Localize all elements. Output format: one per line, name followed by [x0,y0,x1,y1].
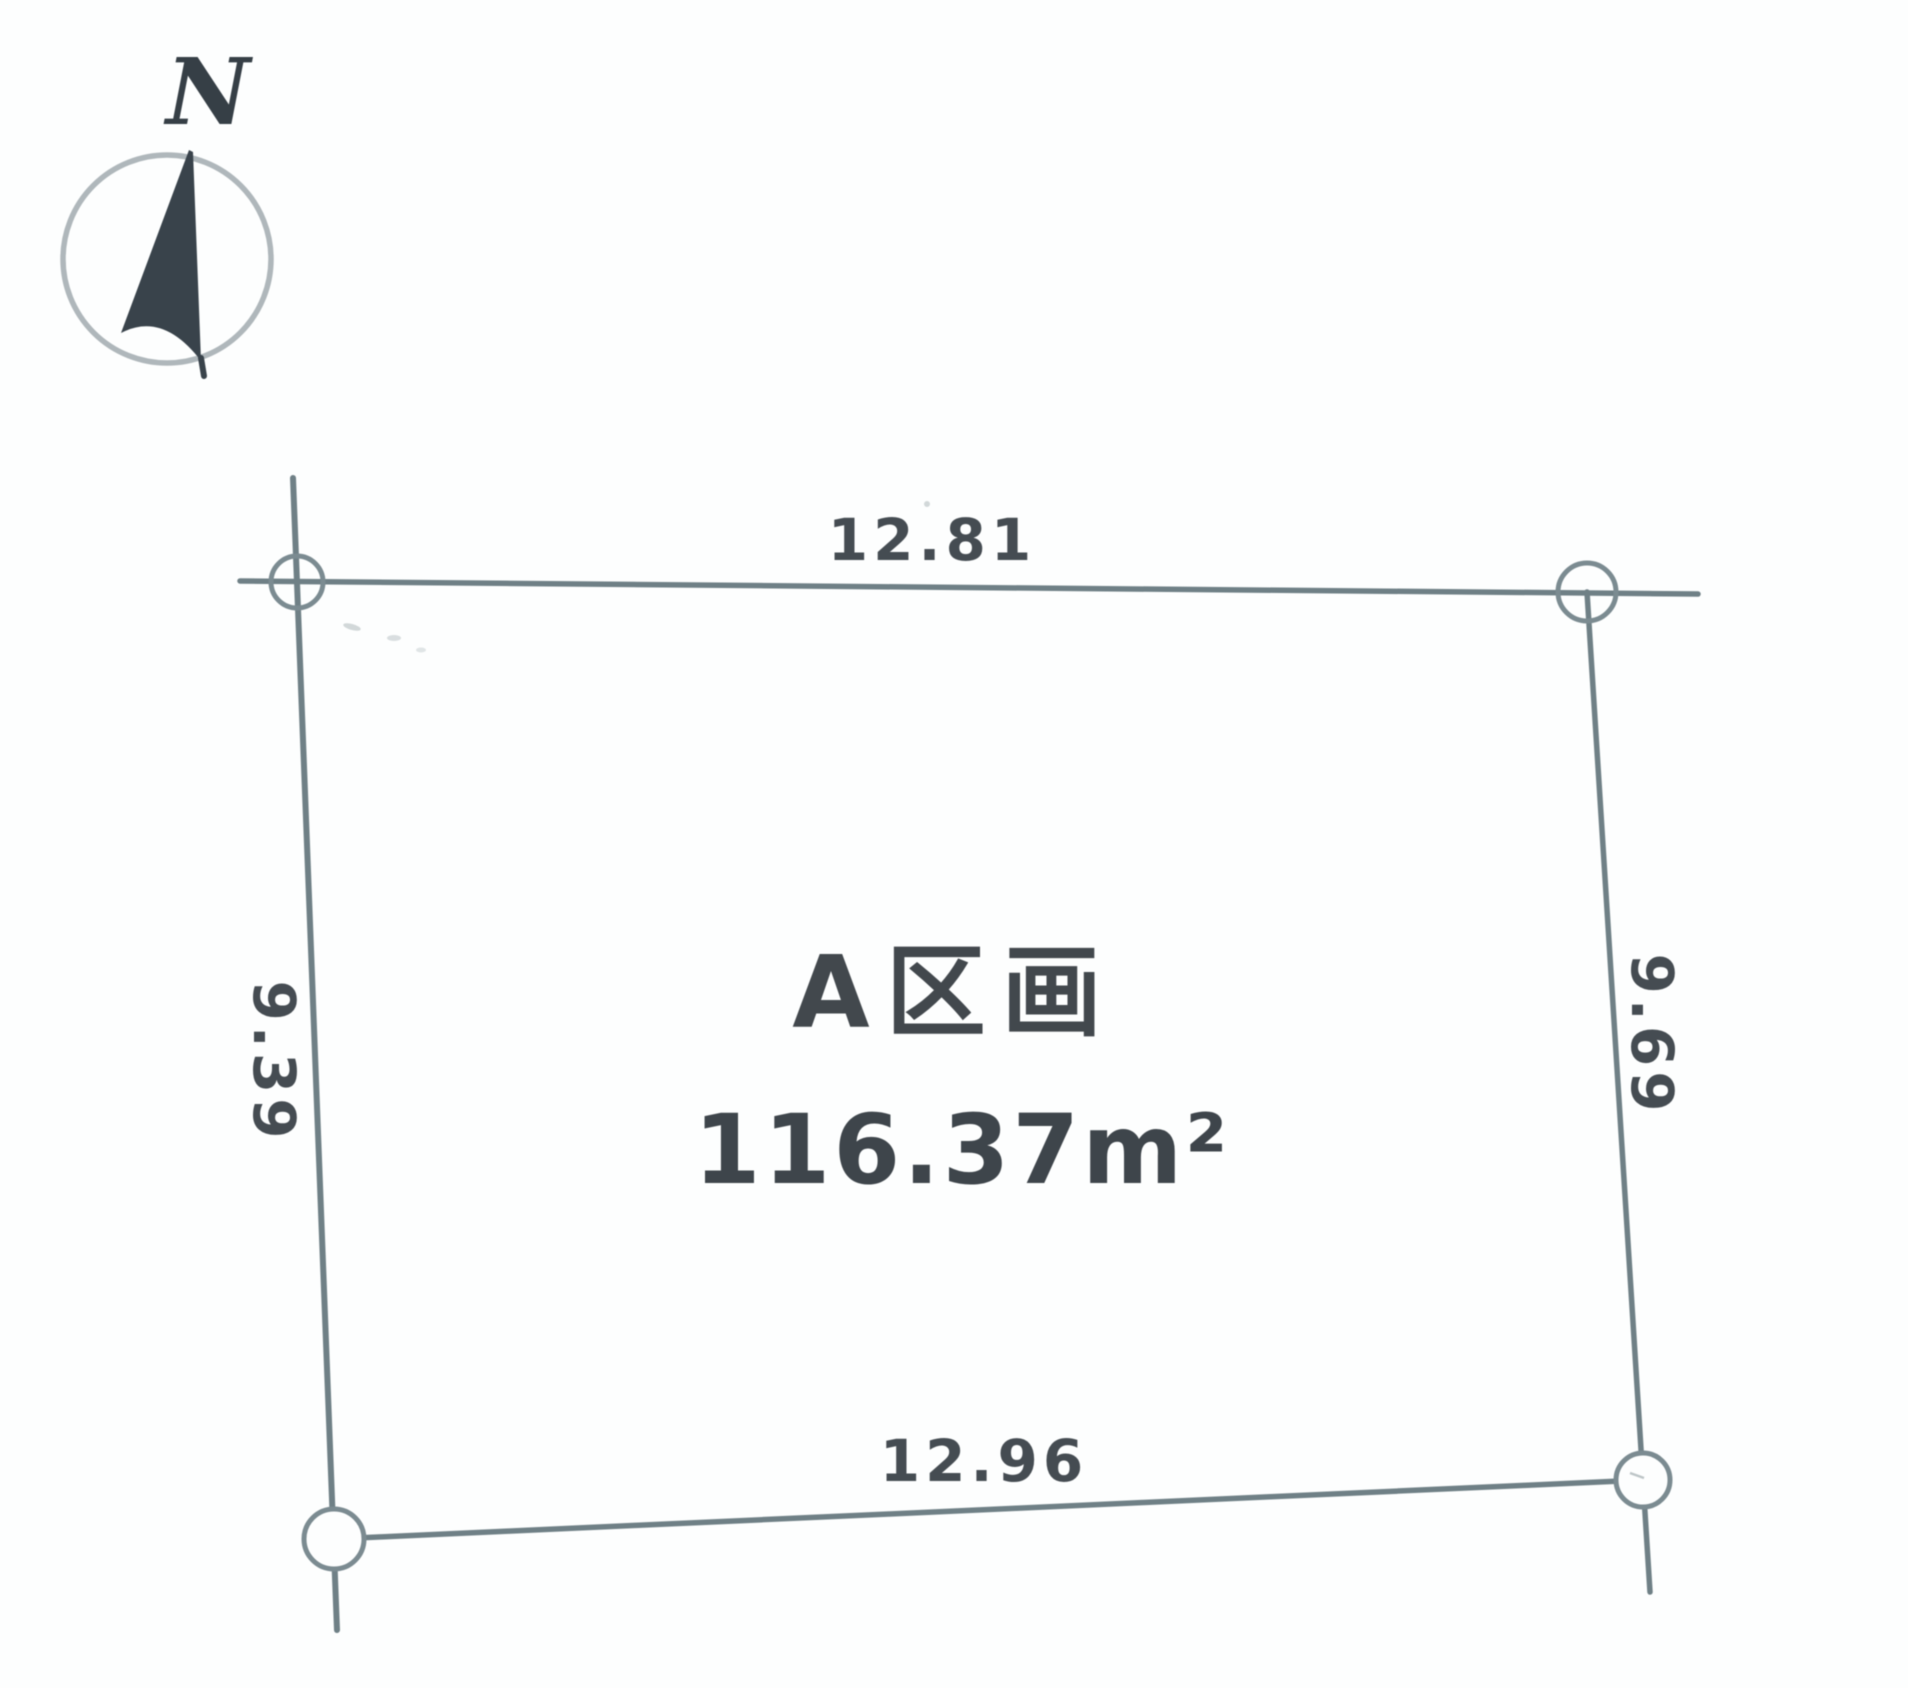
compass-rose [63,150,271,376]
north-arrow-icon [121,150,201,361]
land-plot-plan-page: N 12.81 12.96 9.39 9.69 A区画 116.37m² [0,0,1908,1688]
survey-marker-bottom-left [304,1509,364,1569]
scan-speck [387,635,401,641]
north-label: N [166,46,250,138]
plot-area-unit: m² [1082,1094,1230,1206]
plot-area: 116.37m² [694,1102,1231,1198]
dimension-label-bottom: 12.96 [880,1432,1088,1490]
scan-speck [343,622,362,632]
dimension-label-top: 12.81 [828,511,1036,569]
scan-speck [416,648,426,653]
compass-needle-stem [201,358,204,376]
plot-name: A区画 [792,943,1117,1043]
dimension-label-left: 9.39 [245,980,303,1143]
survey-marker-bottom-right [1616,1453,1670,1507]
plot-area-value: 116.37 [694,1094,1082,1206]
dimension-label-right: 9.69 [1623,953,1681,1116]
boundary-edge-top [240,581,1698,594]
